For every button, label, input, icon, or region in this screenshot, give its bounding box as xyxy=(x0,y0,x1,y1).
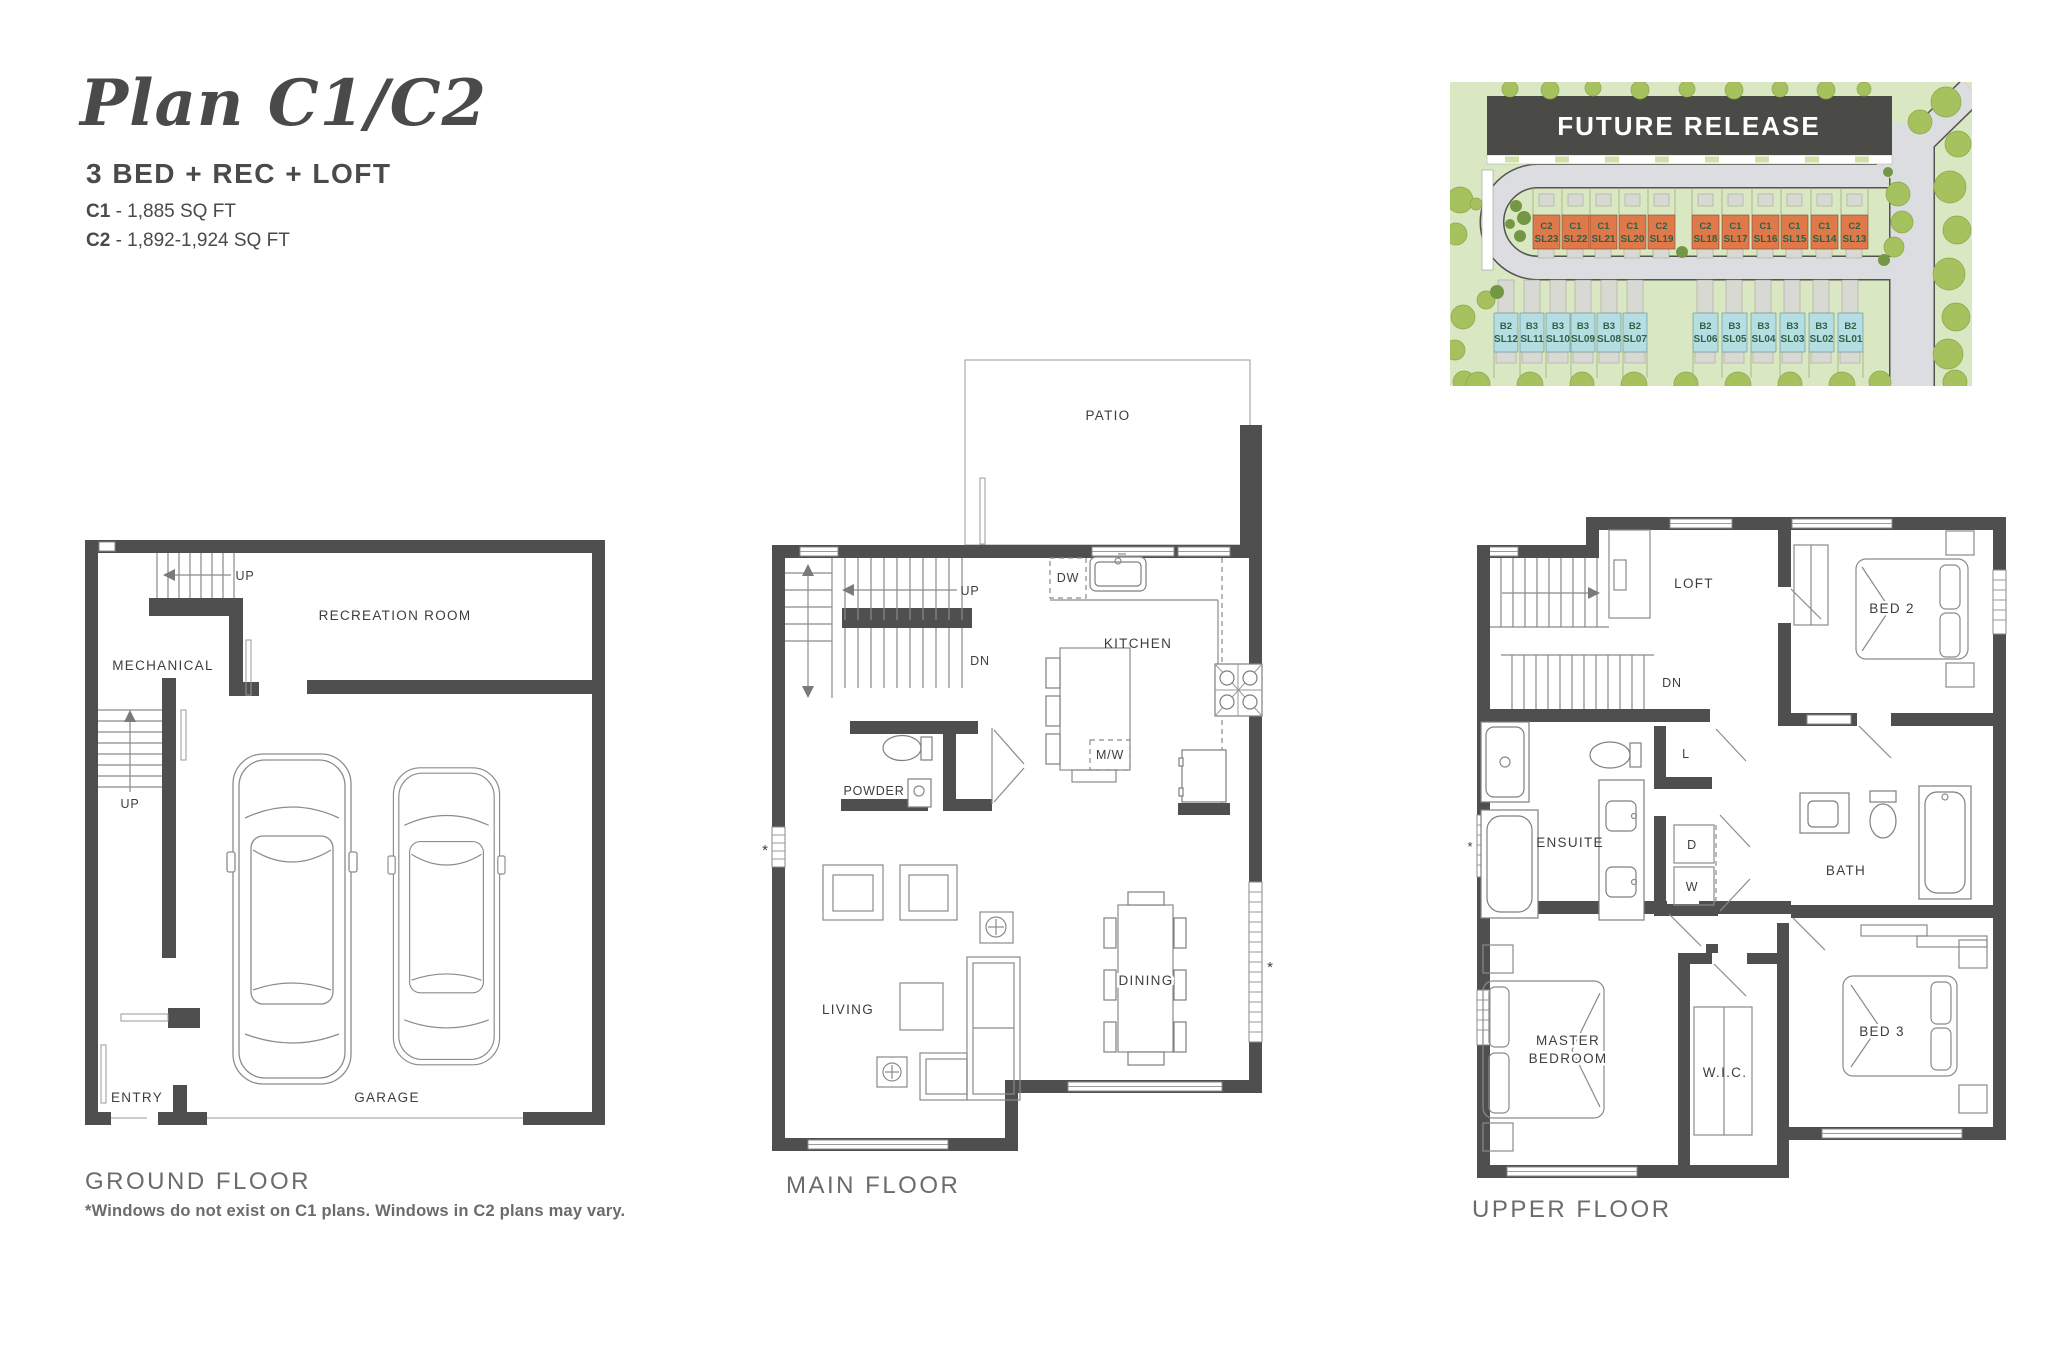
spec-c1-code: C1 xyxy=(86,201,110,222)
lot: C1SL21 xyxy=(1590,215,1617,249)
svg-text:B3: B3 xyxy=(1786,321,1798,332)
label-entry: ENTRY xyxy=(111,1090,163,1105)
label-patio: PATIO xyxy=(1085,408,1130,423)
svg-text:SL03: SL03 xyxy=(1781,334,1805,345)
svg-text:C1: C1 xyxy=(1788,221,1801,232)
label-mw: M/W xyxy=(1096,748,1124,762)
plan-subtitle: 3 BED + REC + LOFT xyxy=(86,158,392,190)
label-dryer: D xyxy=(1687,838,1697,852)
page-title: Plan C1/C2 xyxy=(80,66,487,141)
lot: C2SL13 xyxy=(1841,215,1868,249)
main-floor-plan: * * xyxy=(758,358,1304,1158)
label-garage: GARAGE xyxy=(354,1090,420,1105)
c-lot-row: C2SL23 C1SL22 C1SL21 C1SL20 C2SL19 C2SL1… xyxy=(1533,215,1868,249)
svg-text:C1: C1 xyxy=(1729,221,1742,232)
svg-text:SL11: SL11 xyxy=(1520,334,1544,345)
lot: C1SL15 xyxy=(1781,215,1808,249)
svg-text:SL21: SL21 xyxy=(1592,234,1616,245)
label-dn-upper: DN xyxy=(1662,676,1682,690)
label-linen: L xyxy=(1682,747,1690,761)
svg-text:SL17: SL17 xyxy=(1724,234,1748,245)
label-up-top: UP xyxy=(236,569,255,583)
living-furniture xyxy=(823,865,1020,1100)
svg-text:B2: B2 xyxy=(1844,321,1856,332)
plan-specs: C1 - 1,885 SQ FT C2 - 1,892-1,924 SQ FT xyxy=(86,198,290,255)
svg-text:B2: B2 xyxy=(1500,321,1512,332)
label-living: LIVING xyxy=(822,1002,874,1017)
svg-text:C2: C2 xyxy=(1655,221,1667,232)
laundry-closets xyxy=(1674,726,1891,911)
label-mechanical: MECHANICAL xyxy=(112,658,214,673)
svg-text:C2: C2 xyxy=(1848,221,1860,232)
spec-c2-area: - 1,892-1,924 SQ FT xyxy=(116,230,290,251)
svg-text:B3: B3 xyxy=(1757,321,1769,332)
ground-floor-name: GROUND FLOOR xyxy=(85,1168,311,1196)
svg-text:C1: C1 xyxy=(1597,221,1610,232)
svg-text:SL16: SL16 xyxy=(1754,234,1778,245)
lot: B3SL03 xyxy=(1780,313,1805,352)
future-release-label: FUTURE RELEASE xyxy=(1557,111,1820,141)
label-master-2: BEDROOM xyxy=(1529,1051,1608,1066)
svg-text:C1: C1 xyxy=(1818,221,1831,232)
main-floor-name: MAIN FLOOR xyxy=(786,1172,960,1200)
bed3-closet xyxy=(1793,918,1987,950)
label-recreation: RECREATION ROOM xyxy=(319,608,472,623)
label-dining: DINING xyxy=(1118,973,1173,988)
window-asterisk-right: * xyxy=(1267,959,1273,976)
label-master-1: MASTER xyxy=(1536,1033,1600,1048)
banner-sidewalk xyxy=(1487,155,1892,164)
windows-note: *Windows do not exist on C1 plans. Windo… xyxy=(85,1202,625,1221)
svg-text:SL20: SL20 xyxy=(1621,234,1645,245)
svg-text:B3: B3 xyxy=(1577,321,1589,332)
kitchen-fixtures xyxy=(1046,554,1262,803)
label-ensuite: ENSUITE xyxy=(1536,835,1604,850)
svg-text:SL01: SL01 xyxy=(1839,334,1863,345)
lot: C2SL23 xyxy=(1533,215,1560,249)
svg-text:C1: C1 xyxy=(1626,221,1639,232)
lot: B2SL07 xyxy=(1623,313,1647,352)
lot: B2SL06 xyxy=(1693,313,1718,352)
lot: B3SL05 xyxy=(1722,313,1747,352)
svg-text:C1: C1 xyxy=(1569,221,1582,232)
svg-text:C1: C1 xyxy=(1759,221,1772,232)
svg-text:SL15: SL15 xyxy=(1783,234,1807,245)
lot: B3SL04 xyxy=(1751,313,1776,352)
label-wic: W.I.C. xyxy=(1703,1065,1748,1080)
svg-text:SL02: SL02 xyxy=(1810,334,1834,345)
lot: C2SL19 xyxy=(1648,215,1675,249)
svg-text:SL04: SL04 xyxy=(1752,334,1776,345)
lot: C1SL16 xyxy=(1752,215,1779,249)
svg-text:SL07: SL07 xyxy=(1623,334,1647,345)
upper-stairs xyxy=(1490,558,1654,709)
label-dn: DN xyxy=(970,654,990,668)
svg-text:SL10: SL10 xyxy=(1546,334,1570,345)
label-loft: LOFT xyxy=(1674,576,1714,591)
spec-c1-area: - 1,885 SQ FT xyxy=(116,201,236,222)
label-up-left: UP xyxy=(121,797,140,811)
upper-floor-plan: * xyxy=(1462,515,2010,1185)
label-powder: POWDER xyxy=(843,784,904,798)
ensuite-fixtures xyxy=(1481,722,1644,920)
lot: C1SL17 xyxy=(1722,215,1749,249)
svg-text:SL22: SL22 xyxy=(1564,234,1588,245)
svg-text:SL19: SL19 xyxy=(1650,234,1674,245)
lot: B3SL11 xyxy=(1520,313,1544,352)
svg-text:B3: B3 xyxy=(1552,321,1564,332)
upper-floor-name: UPPER FLOOR xyxy=(1472,1196,1672,1224)
svg-text:SL06: SL06 xyxy=(1694,334,1718,345)
svg-text:SL12: SL12 xyxy=(1494,334,1518,345)
svg-text:C2: C2 xyxy=(1540,221,1552,232)
ground-stairs-left xyxy=(98,710,162,792)
svg-text:SL18: SL18 xyxy=(1694,234,1718,245)
svg-text:B3: B3 xyxy=(1526,321,1538,332)
car-icon xyxy=(388,768,505,1065)
svg-text:SL14: SL14 xyxy=(1813,234,1837,245)
lot: B3SL08 xyxy=(1597,313,1621,352)
window-asterisk-left: * xyxy=(762,842,768,859)
lot: B3SL02 xyxy=(1809,313,1834,352)
bath-fixtures xyxy=(1800,786,1971,899)
spec-c2: C2 - 1,892-1,924 SQ FT xyxy=(86,227,290,256)
label-bed3: BED 3 xyxy=(1859,1024,1905,1039)
window-asterisk-upper: * xyxy=(1467,839,1472,854)
lot: B2SL12 xyxy=(1494,313,1518,352)
patio xyxy=(965,360,1250,545)
lot: B2SL01 xyxy=(1838,313,1863,352)
label-bed2: BED 2 xyxy=(1869,601,1915,616)
svg-text:SL23: SL23 xyxy=(1535,234,1559,245)
spec-c2-code: C2 xyxy=(86,230,110,251)
side-window-left xyxy=(772,827,785,867)
future-lot-strip xyxy=(1482,170,1493,270)
site-map: FUTURE RELEASE xyxy=(1450,82,1972,386)
lot: C1SL14 xyxy=(1811,215,1838,249)
loft-desk xyxy=(1609,530,1650,618)
lot: C1SL20 xyxy=(1619,215,1646,249)
lot: C1SL22 xyxy=(1562,215,1589,249)
svg-text:SL09: SL09 xyxy=(1571,334,1595,345)
label-dw: DW xyxy=(1057,571,1079,585)
label-bath: BATH xyxy=(1826,863,1866,878)
svg-text:SL08: SL08 xyxy=(1597,334,1621,345)
svg-text:B2: B2 xyxy=(1699,321,1711,332)
svg-text:B3: B3 xyxy=(1728,321,1740,332)
svg-text:B3: B3 xyxy=(1815,321,1827,332)
car-icon xyxy=(227,754,357,1084)
side-window-right xyxy=(1249,882,1262,1042)
svg-text:SL13: SL13 xyxy=(1843,234,1867,245)
svg-text:B2: B2 xyxy=(1629,321,1641,332)
label-washer: W xyxy=(1686,880,1699,894)
svg-text:SL05: SL05 xyxy=(1723,334,1747,345)
ground-floor-plan: UP RECREATION ROOM MECHANICAL UP ENTRY G… xyxy=(85,540,605,1138)
svg-text:C2: C2 xyxy=(1699,221,1711,232)
svg-text:B3: B3 xyxy=(1603,321,1615,332)
label-kitchen: KITCHEN xyxy=(1104,636,1172,651)
spec-c1: C1 - 1,885 SQ FT xyxy=(86,198,290,227)
ground-stairs-top xyxy=(157,553,234,598)
lot: B3SL10 xyxy=(1546,313,1570,352)
lot: C2SL18 xyxy=(1692,215,1719,249)
plan-sheet: Plan C1/C2 3 BED + REC + LOFT C1 - 1,885… xyxy=(0,0,2052,1350)
label-up: UP xyxy=(961,584,980,598)
lot: B3SL09 xyxy=(1571,313,1595,352)
